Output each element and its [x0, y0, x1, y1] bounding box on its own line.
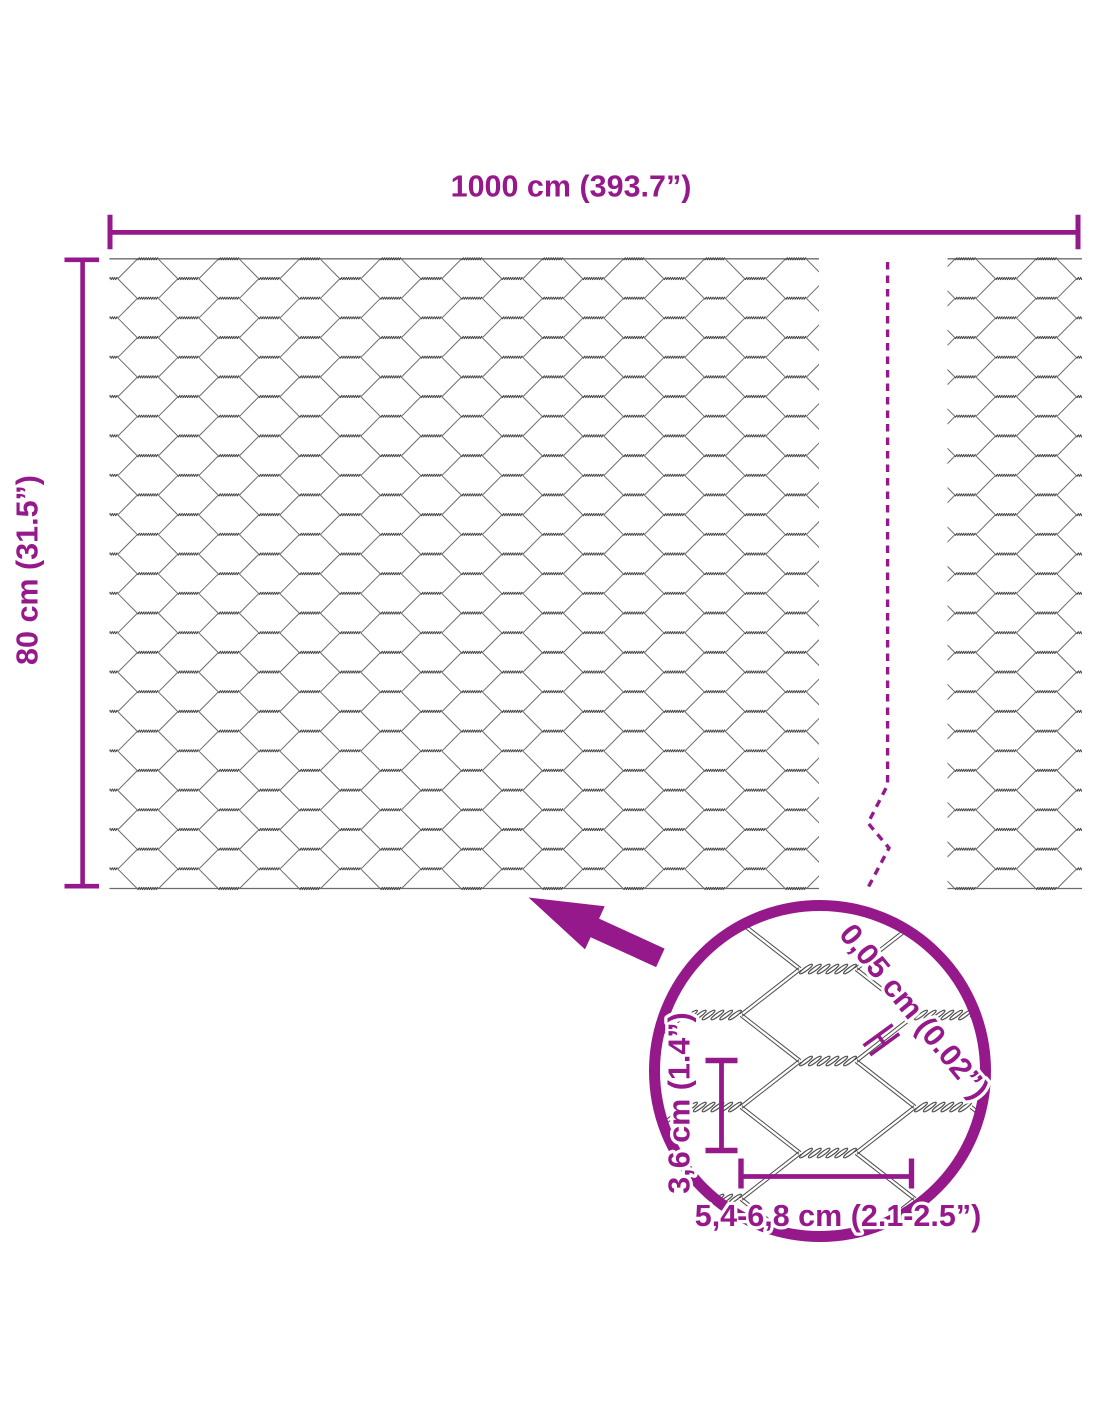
svg-text:80 cm (31.5”): 80 cm (31.5”)	[11, 475, 45, 665]
svg-text:1000 cm (393.7”): 1000 cm (393.7”)	[451, 170, 692, 204]
svg-text:3,6 cm (1.4”): 3,6 cm (1.4”)	[663, 1012, 697, 1193]
svg-text:5,4-6,8 cm (2.1-2.5”): 5,4-6,8 cm (2.1-2.5”)	[695, 1199, 982, 1233]
